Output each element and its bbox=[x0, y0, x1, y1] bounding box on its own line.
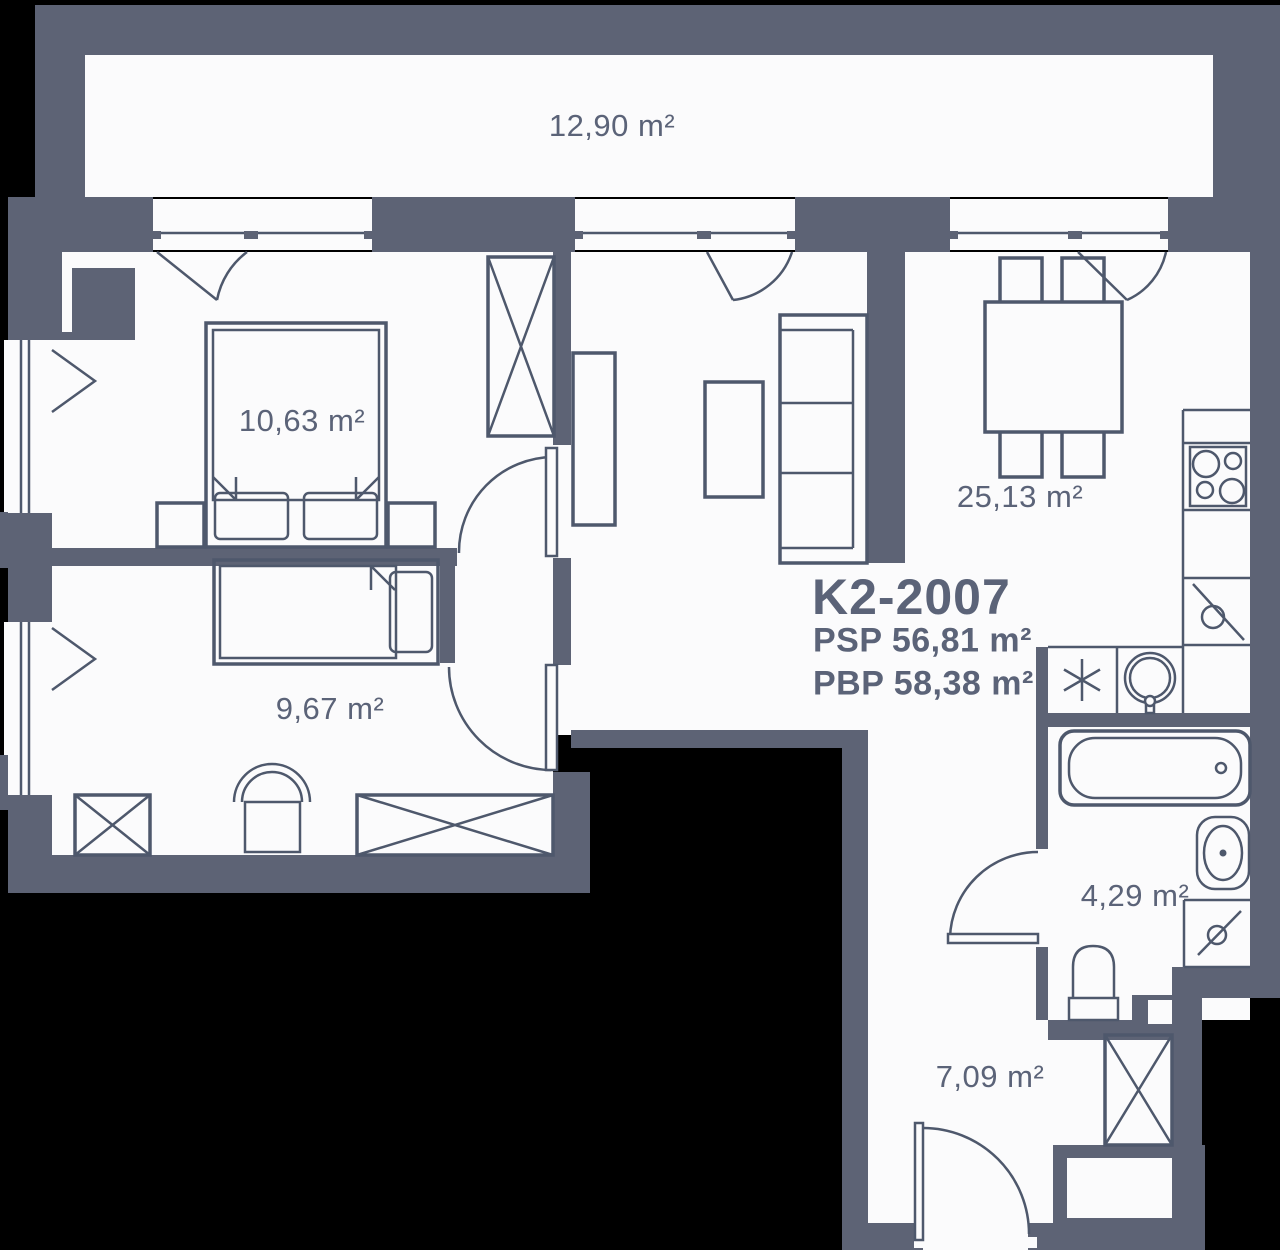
window-3-opening bbox=[950, 199, 1168, 250]
hallway-area-label: 7,09 m² bbox=[936, 1059, 1045, 1095]
window-1-opening bbox=[153, 199, 372, 250]
round-sink-tap-head bbox=[1145, 696, 1155, 706]
bedroom-1-area-label: 10,63 m² bbox=[239, 403, 365, 439]
bathroom-door-leaf bbox=[948, 934, 1038, 943]
window-2-opening bbox=[575, 199, 795, 250]
unit-code: K2-2007 bbox=[812, 568, 1011, 626]
dining-table bbox=[985, 302, 1122, 432]
hall-niche bbox=[1067, 1158, 1172, 1218]
living-kitchen-area-label: 25,13 m² bbox=[957, 479, 1083, 515]
bedroom-2-area-label: 9,67 m² bbox=[276, 691, 385, 727]
unit-pbp-area: PBP 58,38 m² bbox=[813, 665, 1034, 704]
entrance-door-leaf bbox=[915, 1123, 923, 1240]
floor-plan-drawing bbox=[0, 0, 1280, 1250]
bathroom-area-label: 4,29 m² bbox=[1081, 878, 1190, 914]
unit-psp-area: PSP 56,81 m² bbox=[813, 622, 1032, 661]
balcony-area-label: 12,90 m² bbox=[549, 108, 675, 144]
floor-plan: 12,90 m² 10,63 m² 9,67 m² 25,13 m² 4,29 … bbox=[0, 0, 1280, 1250]
washbasin-drain bbox=[1220, 850, 1227, 857]
bedroom-2-door-leaf bbox=[546, 665, 557, 770]
bedroom-1-door-leaf bbox=[546, 448, 557, 556]
duct-shaft bbox=[1148, 1000, 1172, 1024]
